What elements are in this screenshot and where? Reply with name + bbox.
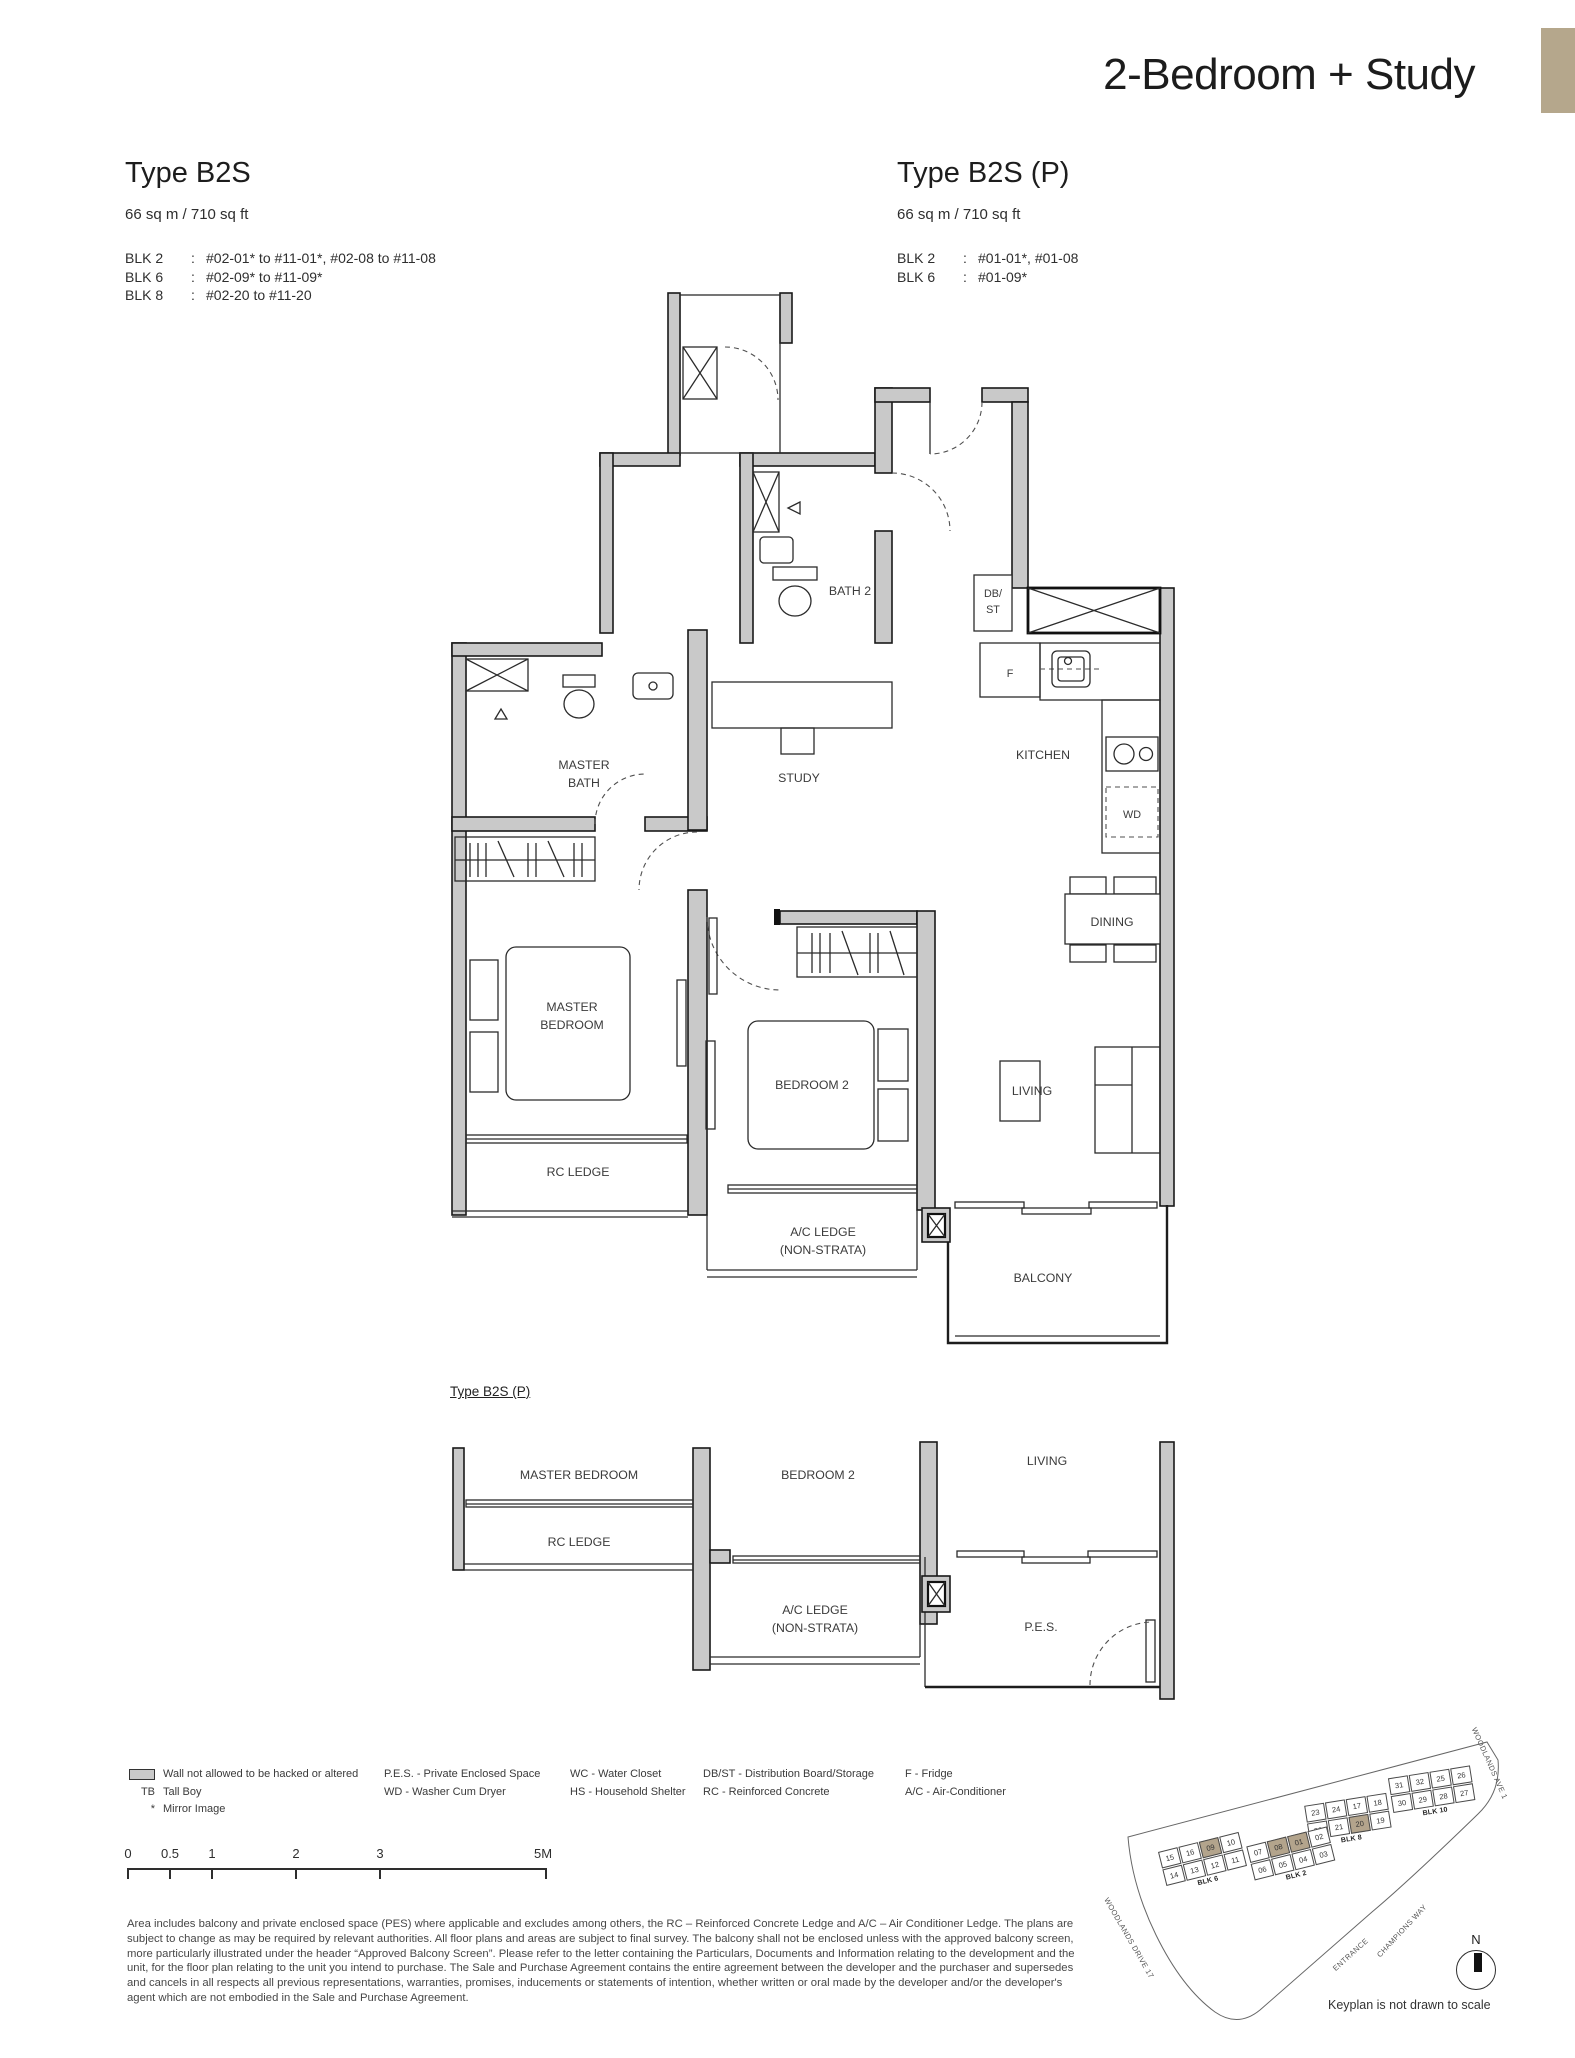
keyplan-unit: 04: [1291, 1849, 1315, 1870]
disclaimer-text: Area includes balcony and private enclos…: [127, 1917, 1079, 2006]
label-bedroom2: BEDROOM 2: [775, 1078, 849, 1092]
keyplan-unit: 05: [1271, 1854, 1295, 1875]
keyplan-unit: 28: [1432, 1786, 1454, 1806]
type-name: Type B2S: [125, 157, 605, 190]
block-row: BLK 2:#02-01* to #11-01*, #02-08 to #11-…: [125, 249, 436, 268]
label-living: LIVING: [1027, 1454, 1067, 1468]
legend-mirror-abbr: *: [123, 1801, 155, 1819]
keyplan-unit: 25: [1429, 1769, 1451, 1789]
keyplan-unit: 13: [1183, 1860, 1207, 1881]
legend-entry: WC - Water Closet: [570, 1766, 686, 1784]
legend-col-5: F - FridgeA/C - Air-Conditioner: [905, 1766, 1006, 1801]
label-balcony: BALCONY: [1014, 1271, 1073, 1285]
label-ac-ledge-1: A/C LEDGE: [782, 1603, 848, 1617]
study-chair: [781, 728, 814, 754]
legend-entry: RC - Reinforced Concrete: [703, 1784, 874, 1802]
type-b2s-header: Type B2S 66 sq m / 710 sq ft BLK 2:#02-0…: [125, 157, 605, 190]
keyplan-unit: 18: [1366, 1793, 1388, 1813]
label-rc-ledge: RC LEDGE: [547, 1165, 610, 1179]
legend-tb-abbr: TB: [123, 1784, 155, 1802]
entrance-door-arc: [930, 402, 982, 454]
keyplan-unit: 06: [1251, 1859, 1275, 1880]
dbst-box: [974, 575, 1012, 631]
keyplan-unit: 24: [1325, 1799, 1347, 1819]
scale-tick-0: 0: [124, 1846, 131, 1861]
label-master-bath-2: BATH: [568, 776, 600, 790]
block-row: BLK 2:#01-01*, #01-08: [897, 249, 1078, 268]
block-row: BLK 8:#02-20 to #11-20: [125, 286, 436, 305]
legend-col-1: Wall not allowed to be hacked or altered…: [123, 1766, 358, 1819]
keyplan: 23241718 22212019 BLK 8 31322526 3029282…: [1080, 1700, 1575, 2050]
label-wd: WD: [1123, 809, 1141, 821]
legend-col-2: P.E.S. - Private Enclosed SpaceWD - Wash…: [384, 1766, 540, 1801]
floorplan-main-svg: DB/ ST BATH 2 MASTER BATH: [440, 285, 1180, 1365]
legend-entry: P.E.S. - Private Enclosed Space: [384, 1766, 540, 1784]
keyplan-unit: 21: [1328, 1817, 1350, 1837]
scale-tick-1: 1: [208, 1846, 215, 1861]
type-area: 66 sq m / 710 sq ft: [897, 206, 1020, 223]
keyplan-unit: 26: [1450, 1765, 1472, 1785]
label-master-bath-1: MASTER: [558, 758, 609, 772]
block-row: BLK 6:#02-09* to #11-09*: [125, 268, 436, 287]
keyplan-unit: 29: [1411, 1790, 1433, 1810]
legend-tb-row: TB Tall Boy: [123, 1784, 358, 1802]
type-b2s-block-list: BLK 2:#02-01* to #11-01*, #02-08 to #11-…: [125, 249, 436, 305]
bedroom2-furniture: [706, 909, 917, 1149]
legend-wall-row: Wall not allowed to be hacked or altered: [123, 1766, 358, 1784]
label-pes: P.E.S.: [1024, 1620, 1057, 1634]
floorplan-main: DB/ ST BATH 2 MASTER BATH: [440, 285, 1180, 1365]
living-pes-structure: [922, 1551, 1160, 1687]
keyplan-unit: 19: [1369, 1811, 1391, 1831]
scale-tick-05: 0.5: [161, 1846, 179, 1861]
north-label: N: [1456, 1932, 1496, 1947]
legend-mirror-label: Mirror Image: [163, 1801, 225, 1819]
legend-entry: F - Fridge: [905, 1766, 1006, 1784]
master-bedroom-furniture: [455, 832, 697, 1100]
floorplan-p: MASTER BEDROOM RC LEDGE BEDROOM 2 A/C LE…: [440, 1380, 1180, 1710]
scale-bar-line: [127, 1868, 547, 1870]
legend-mirror-row: * Mirror Image: [123, 1801, 358, 1819]
label-rc-ledge: RC LEDGE: [548, 1535, 611, 1549]
scale-tick-2: 2: [292, 1846, 299, 1861]
label-bedroom2: BEDROOM 2: [781, 1468, 855, 1482]
type-b2s-p-header: Type B2S (P) 66 sq m / 710 sq ft BLK 2:#…: [897, 157, 1377, 190]
study-desk: [712, 682, 892, 728]
label-master-bedroom-2: BEDROOM: [540, 1018, 604, 1032]
keyplan-unit: 27: [1453, 1783, 1475, 1803]
block-row: BLK 6:#01-09*: [897, 268, 1078, 287]
keyplan-unit: 31: [1388, 1775, 1410, 1795]
legend-entry: WD - Washer Cum Dryer: [384, 1784, 540, 1802]
keyplan-unit: 32: [1409, 1772, 1431, 1792]
page-title: 2-Bedroom + Study: [1103, 50, 1475, 100]
legend-entry: HS - Household Shelter: [570, 1784, 686, 1802]
keyplan-unit: 03: [1312, 1844, 1336, 1865]
master-bath-fixtures: [466, 659, 673, 824]
keyplan-unit: 20: [1348, 1814, 1370, 1834]
type-area: 66 sq m / 710 sq ft: [125, 206, 248, 223]
legend-entry: DB/ST - Distribution Board/Storage: [703, 1766, 874, 1784]
label-ac-ledge-1: A/C LEDGE: [790, 1225, 856, 1239]
legend-col-4: DB/ST - Distribution Board/StorageRC - R…: [703, 1766, 874, 1801]
label-master-bedroom-1: MASTER: [546, 1000, 597, 1014]
keyplan-caption: Keyplan is not drawn to scale: [1328, 1998, 1491, 2012]
compass-needle: [1474, 1953, 1482, 1972]
keyplan-unit: 17: [1346, 1796, 1368, 1816]
label-ac-ledge-2: (NON-STRATA): [780, 1243, 866, 1257]
type-b2s-p-block-list: BLK 2:#01-01*, #01-08BLK 6:#01-09*: [897, 249, 1078, 286]
keyplan-unit: 11: [1223, 1849, 1247, 1870]
legend-wall-label: Wall not allowed to be hacked or altered: [163, 1766, 358, 1784]
label-dbst-2: ST: [986, 604, 1000, 616]
label-kitchen: KITCHEN: [1016, 748, 1070, 762]
corner-tab: [1541, 28, 1575, 113]
label-bath2: BATH 2: [829, 584, 871, 598]
label-master-bedroom: MASTER BEDROOM: [520, 1468, 638, 1482]
keyplan-unit: 14: [1162, 1865, 1186, 1886]
label-dining: DINING: [1090, 915, 1133, 929]
scale-tick-3: 3: [376, 1846, 383, 1861]
floorplan-p-svg: MASTER BEDROOM RC LEDGE BEDROOM 2 A/C LE…: [440, 1380, 1180, 1710]
wall-swatch-icon: [129, 1769, 155, 1780]
scale-tick-5m: 5M: [534, 1846, 552, 1861]
label-study: STUDY: [778, 771, 820, 785]
label-living: LIVING: [1012, 1084, 1052, 1098]
label-ac-ledge-2: (NON-STRATA): [772, 1621, 858, 1635]
label-fridge: F: [1007, 668, 1014, 680]
keyplan-unit: 12: [1203, 1854, 1227, 1875]
legend-col-3: WC - Water ClosetHS - Household Shelter: [570, 1766, 686, 1801]
keyplan-unit: 30: [1391, 1793, 1413, 1813]
type-name: Type B2S (P): [897, 157, 1377, 190]
service-shaft: [680, 295, 780, 453]
living-furniture: [1000, 1047, 1160, 1153]
legend-entry: A/C - Air-Conditioner: [905, 1784, 1006, 1802]
label-dbst-1: DB/: [984, 588, 1002, 600]
legend-tb-label: Tall Boy: [163, 1784, 202, 1802]
